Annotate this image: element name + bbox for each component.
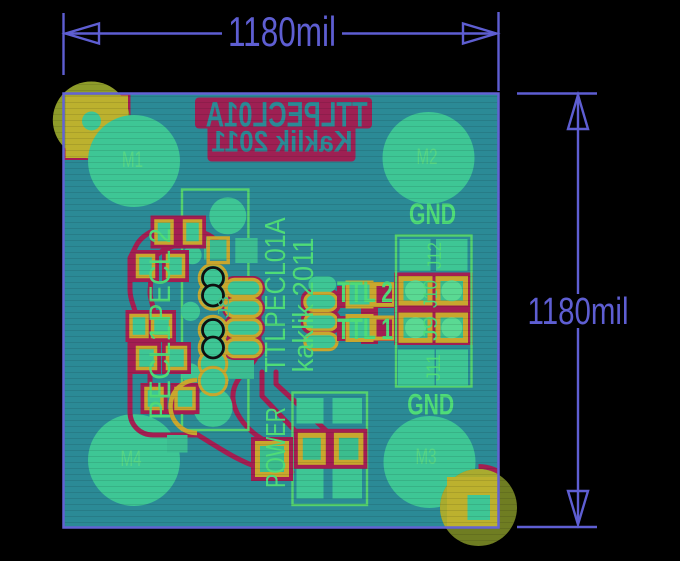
svg-text:1180mil: 1180mil xyxy=(228,8,336,55)
svg-text:1180mil: 1180mil xyxy=(528,291,629,333)
